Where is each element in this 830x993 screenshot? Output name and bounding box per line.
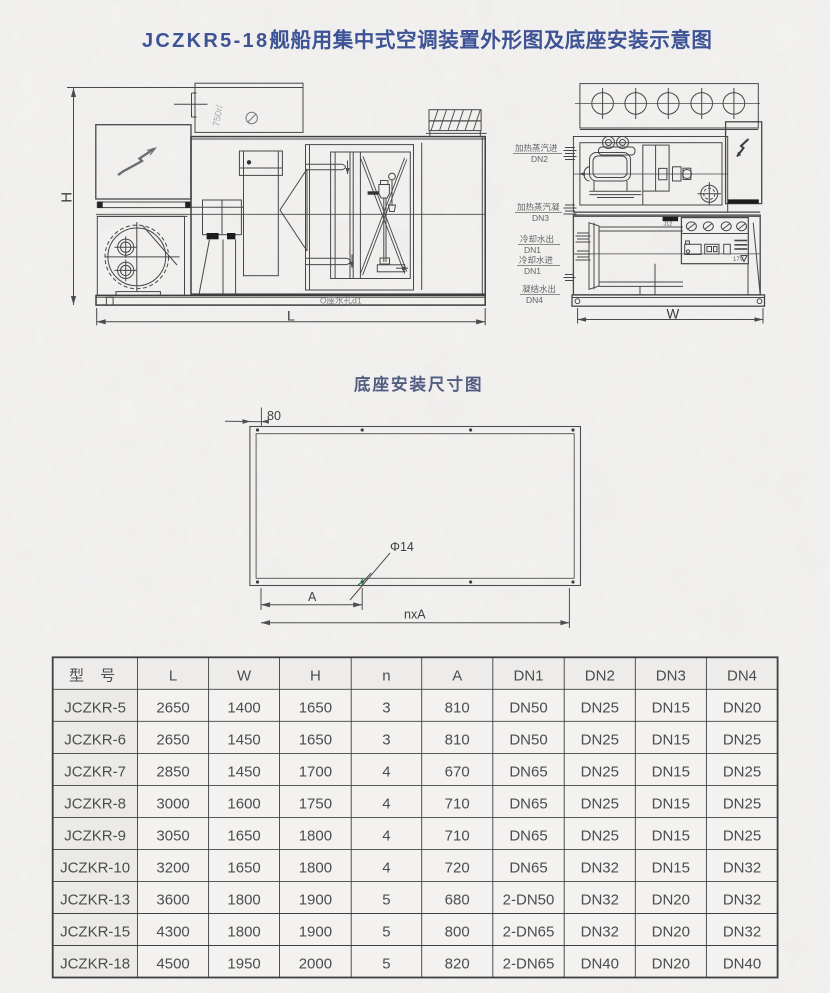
svg-text:1800: 1800 (299, 827, 332, 844)
svg-text:670: 670 (445, 763, 470, 780)
svg-text:1800: 1800 (299, 859, 332, 876)
svg-text:1400: 1400 (227, 699, 260, 716)
svg-text:DN40: DN40 (723, 956, 761, 973)
svg-text:DN1: DN1 (524, 266, 541, 276)
svg-text:JCZKR-6: JCZKR-6 (64, 731, 126, 748)
svg-text:DN32: DN32 (581, 924, 619, 941)
svg-text:1650: 1650 (227, 827, 260, 844)
svg-text:820: 820 (445, 956, 470, 973)
svg-text:DN15: DN15 (652, 763, 690, 780)
svg-text:DN50: DN50 (509, 699, 547, 716)
svg-text:1650: 1650 (299, 731, 332, 748)
svg-text:DN15: DN15 (652, 795, 690, 812)
svg-text:A: A (452, 667, 462, 684)
svg-text:1800: 1800 (227, 924, 260, 941)
svg-text:DN25: DN25 (581, 795, 619, 812)
svg-text:冷却水进: 冷却水进 (519, 255, 554, 265)
svg-text:3600: 3600 (156, 891, 189, 908)
svg-text:2000: 2000 (299, 956, 332, 973)
svg-text:DN15: DN15 (652, 827, 690, 844)
svg-text:810: 810 (445, 731, 470, 748)
svg-text:DN1: DN1 (524, 245, 541, 255)
svg-text:JCZKR-5: JCZKR-5 (64, 699, 126, 716)
svg-text:680: 680 (445, 891, 470, 908)
svg-text:4300: 4300 (156, 924, 189, 941)
svg-text:JCZKR-13: JCZKR-13 (60, 891, 130, 908)
svg-text:DN3: DN3 (656, 667, 686, 684)
svg-text:1700: 1700 (299, 763, 332, 780)
svg-text:710: 710 (445, 795, 470, 812)
svg-text:DN20: DN20 (652, 924, 690, 941)
svg-text:DN15: DN15 (652, 859, 690, 876)
svg-text:1950: 1950 (227, 956, 260, 973)
svg-text:DN4: DN4 (727, 667, 757, 684)
svg-text:W: W (237, 667, 252, 684)
svg-text:1450: 1450 (227, 731, 260, 748)
svg-text:DN40: DN40 (581, 956, 619, 973)
svg-text:DN65: DN65 (509, 795, 547, 812)
svg-text:1650: 1650 (227, 859, 260, 876)
svg-text:DN25: DN25 (581, 731, 619, 748)
svg-text:DN2: DN2 (531, 154, 548, 164)
svg-text:1900: 1900 (299, 924, 332, 941)
svg-text:720: 720 (445, 859, 470, 876)
svg-text:DN3: DN3 (532, 213, 549, 223)
svg-text:DN2: DN2 (585, 667, 615, 684)
svg-text:3: 3 (382, 699, 390, 716)
svg-text:n: n (382, 667, 390, 684)
svg-text:DN32: DN32 (723, 924, 761, 941)
svg-text:4: 4 (382, 795, 390, 812)
svg-text:冷却水出: 冷却水出 (520, 234, 554, 244)
svg-text:H: H (58, 192, 75, 203)
svg-text:DN32: DN32 (581, 891, 619, 908)
svg-text:4: 4 (382, 859, 390, 876)
svg-text:2650: 2650 (156, 699, 189, 716)
svg-text:810: 810 (445, 699, 470, 716)
svg-text:DN20: DN20 (652, 891, 690, 908)
svg-text:3050: 3050 (156, 827, 189, 844)
svg-text:800: 800 (445, 924, 470, 941)
svg-text:凝结水出: 凝结水出 (522, 284, 556, 294)
svg-text:JCZKR-7: JCZKR-7 (64, 763, 126, 780)
svg-text:DN25: DN25 (581, 827, 619, 844)
svg-text:DN1: DN1 (513, 667, 543, 684)
svg-text:nxA: nxA (404, 608, 426, 622)
svg-text:2650: 2650 (156, 731, 189, 748)
svg-text:底座安装尺寸图: 底座安装尺寸图 (354, 374, 484, 394)
svg-text:1450: 1450 (227, 763, 260, 780)
svg-text:JCZKR-10: JCZKR-10 (60, 859, 130, 876)
svg-text:H: H (310, 667, 321, 684)
svg-text:加热蒸汽凝: 加热蒸汽凝 (517, 202, 560, 212)
svg-text:JCZKR-9: JCZKR-9 (64, 827, 126, 844)
svg-text:5: 5 (382, 924, 390, 941)
svg-text:JCZKR-15: JCZKR-15 (60, 924, 130, 941)
svg-text:3: 3 (382, 731, 390, 748)
svg-text:3200: 3200 (156, 859, 189, 876)
svg-text:DN65: DN65 (509, 827, 547, 844)
svg-text:型 号: 型 号 (69, 667, 121, 684)
svg-text:DN32: DN32 (723, 891, 761, 908)
svg-text:DN15: DN15 (652, 731, 690, 748)
svg-text:4: 4 (382, 827, 390, 844)
svg-text:DN65: DN65 (509, 859, 547, 876)
svg-text:O座水孔d1: O座水孔d1 (320, 296, 362, 306)
svg-text:1750: 1750 (299, 795, 332, 812)
svg-text:2-DN65: 2-DN65 (503, 924, 555, 941)
svg-text:17V: 17V (733, 257, 744, 263)
svg-text:Φ14: Φ14 (390, 540, 414, 554)
svg-text:JCZKR-8: JCZKR-8 (64, 795, 126, 812)
svg-text:1800: 1800 (227, 891, 260, 908)
svg-text:DN25: DN25 (581, 763, 619, 780)
svg-text:DN20: DN20 (723, 699, 761, 716)
svg-text:5: 5 (382, 956, 390, 973)
svg-text:1900: 1900 (299, 891, 332, 908)
svg-text:DN25: DN25 (581, 699, 619, 716)
svg-text:2-DN50: 2-DN50 (503, 891, 555, 908)
svg-text:加热蒸汽进: 加热蒸汽进 (515, 143, 558, 153)
svg-text:L: L (169, 667, 177, 684)
svg-text:JCZKR5-18舰船用集中式空调装置外形图及底座安装示意图: JCZKR5-18舰船用集中式空调装置外形图及底座安装示意图 (142, 28, 713, 52)
svg-text:DN25: DN25 (723, 763, 761, 780)
svg-text:DN25: DN25 (723, 795, 761, 812)
svg-text:5: 5 (382, 891, 390, 908)
svg-text:80: 80 (267, 409, 281, 423)
svg-text:1600: 1600 (227, 795, 260, 812)
svg-text:DN15: DN15 (652, 699, 690, 716)
svg-text:710: 710 (445, 827, 470, 844)
svg-text:4500: 4500 (156, 956, 189, 973)
svg-text:DN20: DN20 (652, 956, 690, 973)
svg-text:2-DN65: 2-DN65 (503, 956, 555, 973)
svg-text:L: L (287, 307, 295, 323)
svg-text:DN25: DN25 (723, 827, 761, 844)
svg-text:1650: 1650 (299, 699, 332, 716)
svg-text:DN50: DN50 (509, 731, 547, 748)
svg-text:DN32: DN32 (581, 859, 619, 876)
svg-text:4: 4 (382, 763, 390, 780)
svg-text:JCZKR-18: JCZKR-18 (60, 956, 130, 973)
svg-text:2850: 2850 (156, 763, 189, 780)
svg-text:A: A (308, 590, 317, 604)
svg-text:DN65: DN65 (509, 763, 547, 780)
svg-text:W: W (667, 306, 680, 321)
svg-text:DN32: DN32 (723, 859, 761, 876)
svg-text:3000: 3000 (156, 795, 189, 812)
svg-text:J12: J12 (664, 222, 673, 228)
svg-text:DN4: DN4 (526, 295, 543, 305)
svg-text:DN25: DN25 (723, 731, 761, 748)
